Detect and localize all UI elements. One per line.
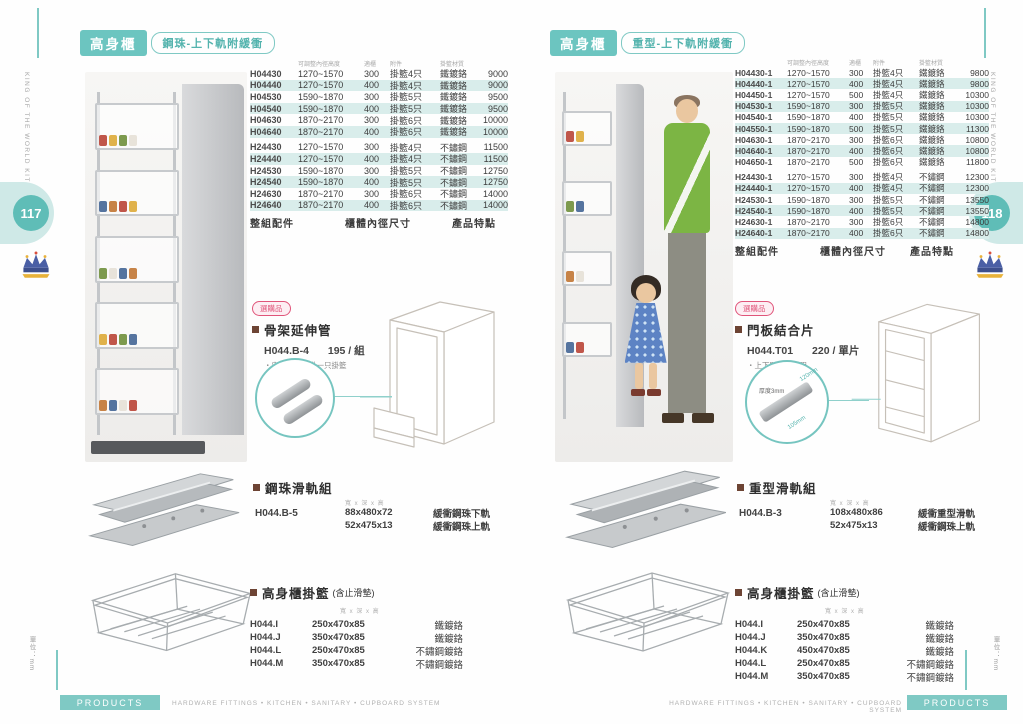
section-bullet bbox=[253, 484, 260, 491]
table-row: H04540 1590~1870 400 掛籃5只 鐵鍍鉻 9500 bbox=[250, 103, 508, 115]
rail-model: H044.B-5 bbox=[255, 508, 298, 519]
basket-dimensions: 350x470x85 bbox=[312, 632, 407, 643]
price: 12750 bbox=[474, 177, 508, 187]
spec-list bbox=[250, 233, 346, 275]
price: 9500 bbox=[474, 104, 508, 114]
basket-title-note: (含止滑墊) bbox=[818, 586, 860, 599]
model-number: H04650-1 bbox=[735, 157, 787, 167]
price: 10300 bbox=[953, 112, 989, 122]
height-range: 1870~2170 bbox=[787, 135, 849, 145]
rail-description: 緩衝鋼珠下軌 bbox=[433, 506, 490, 520]
height-range: 1870~2170 bbox=[298, 115, 364, 125]
price: 10000 bbox=[474, 115, 508, 125]
lifestyle-photo bbox=[555, 72, 733, 462]
rail-title: 重型滑軌組 bbox=[749, 478, 817, 497]
accessory: 掛籃4只 bbox=[873, 67, 919, 79]
price: 13550 bbox=[953, 206, 989, 216]
basket-model: H044.M bbox=[250, 658, 312, 669]
material: 不鏽鋼 bbox=[919, 205, 953, 217]
basket-material: 鐵鍍鉻 bbox=[407, 618, 508, 632]
wire-basket-photo bbox=[85, 565, 257, 675]
height-range: 1270~1570 bbox=[298, 80, 364, 90]
basket-model: H044.I bbox=[250, 619, 312, 630]
height-range: 1270~1570 bbox=[787, 172, 849, 182]
section-bullet bbox=[735, 326, 742, 333]
height-range: 1590~1870 bbox=[298, 92, 364, 102]
table-row: H04430 1270~1570 300 掛籃4只 鐵鍍鉻 9000 bbox=[250, 68, 508, 80]
basket-row: H044.K 450x470x85 鐵鍍鉻 bbox=[735, 644, 989, 657]
model-number: H04630 bbox=[250, 115, 298, 125]
model-number: H04430 bbox=[250, 69, 298, 79]
rail-dimensions: 52x475x13 bbox=[345, 520, 433, 531]
page-title: 高身櫃 bbox=[550, 30, 617, 56]
price: 10800 bbox=[953, 146, 989, 156]
set-accessories-spec: 整組配件 bbox=[250, 215, 346, 275]
accessory: 掛籃6只 bbox=[873, 227, 919, 239]
pullout-basket bbox=[95, 368, 179, 415]
model-number: H04440-1 bbox=[735, 79, 787, 89]
table-row: H24440 1270~1570 400 掛籃4只 不鏽鋼 11500 bbox=[250, 153, 508, 165]
spec-list bbox=[345, 233, 453, 275]
cabinet-width: 300 bbox=[364, 69, 390, 79]
price: 12300 bbox=[953, 183, 989, 193]
cabinet-width: 300 bbox=[364, 166, 390, 176]
section-bullet bbox=[735, 589, 742, 596]
plate-thickness-label: 厚度3mm bbox=[759, 386, 784, 395]
table-row: H04440 1270~1570 400 掛籃4只 鐵鍍鉻 9000 bbox=[250, 80, 508, 92]
model-number: H24430-1 bbox=[735, 172, 787, 182]
basket-dimensions: 450x470x85 bbox=[797, 645, 892, 656]
basket-title: 高身櫃掛籃 bbox=[747, 583, 815, 602]
model-number: H24540-1 bbox=[735, 206, 787, 216]
basket-rows: H044.I 250x470x85 鐵鍍鉻 H044.J 350x470x85 … bbox=[250, 618, 508, 670]
table-row: H24530-1 1590~1870 300 掛籃5只 不鏽鋼 13550 bbox=[735, 194, 989, 205]
model-number: H04640 bbox=[250, 127, 298, 137]
col-header-height-range: 可調整內徑高度 bbox=[298, 59, 364, 68]
table-header-row: 可調整內徑高度 適櫃 附件 掛籃材質 bbox=[735, 57, 989, 67]
table-row: H04450-1 1270~1570 500 掛籃4只 鐵鍍鉻 10300 bbox=[735, 89, 989, 100]
material: 不鏽鋼 bbox=[919, 182, 953, 194]
accessory: 掛籃5只 bbox=[873, 111, 919, 123]
basket-row: H044.M 350x470x85 不鏽鋼鍍鉻 bbox=[250, 657, 508, 670]
cabinet-width: 400 bbox=[364, 200, 390, 210]
pullout-basket bbox=[95, 170, 179, 217]
basket-row: H044.L 250x470x85 不鏽鋼鍍鉻 bbox=[250, 644, 508, 657]
page-subtitle: 重型-上下軌附緩衝 bbox=[621, 32, 746, 54]
model-number: H04550-1 bbox=[735, 124, 787, 134]
basket-material: 不鏽鋼鍍鉻 bbox=[892, 670, 989, 684]
material: 鐵鍍鉻 bbox=[440, 125, 474, 138]
col-header-height-range: 可調整內徑高度 bbox=[787, 58, 849, 67]
price: 13550 bbox=[953, 195, 989, 205]
slide-rail-photo bbox=[85, 468, 247, 560]
table-group-chrome: H04430 1270~1570 300 掛籃4只 鐵鍍鉻 9000 H0444… bbox=[250, 68, 508, 138]
height-range: 1590~1870 bbox=[787, 206, 849, 216]
catalog-page-117: 高身櫃 鋼珠-上下軌附緩衝 可調整內徑高度 適櫃 附件 掛籃材質 bbox=[0, 0, 511, 724]
basket-table-section: 高身櫃掛籃 (含止滑墊) 寬 x 深 x 高 H044.I 250x470x85… bbox=[735, 583, 989, 683]
basket-dimensions: 350x470x85 bbox=[797, 671, 892, 682]
height-range: 1590~1870 bbox=[298, 104, 364, 114]
dims-header: 寬 x 深 x 高 bbox=[825, 606, 989, 615]
rail-title: 鋼珠滑軌組 bbox=[265, 478, 333, 497]
cabinet-width: 400 bbox=[849, 79, 873, 89]
table-row: H04630 1870~2170 300 掛籃6只 鐵鍍鉻 10000 bbox=[250, 114, 508, 126]
table-row: H24630-1 1870~2170 300 掛籃6只 不鏽鋼 14800 bbox=[735, 216, 989, 227]
optional-title: 門板結合片 bbox=[747, 320, 815, 339]
table-group-stainless: H24430-1 1270~1570 300 掛籃4只 不鏽鋼 12300 H2… bbox=[735, 172, 989, 239]
cabinet-width: 400 bbox=[364, 80, 390, 90]
material: 鐵鍍鉻 bbox=[919, 100, 953, 112]
col-header-cabinet-width: 適櫃 bbox=[849, 58, 873, 67]
table-row: H24430-1 1270~1570 300 掛籃4只 不鏽鋼 12300 bbox=[735, 172, 989, 183]
basket-dimensions: 350x470x85 bbox=[312, 658, 407, 669]
optional-badge: 選購品 bbox=[735, 301, 774, 316]
height-range: 1270~1570 bbox=[298, 69, 364, 79]
section-bullet bbox=[252, 326, 259, 333]
cabinet-width: 400 bbox=[364, 127, 390, 137]
material: 鐵鍍鉻 bbox=[919, 156, 953, 168]
catalog-spread: KING OF THE WORLD KITCHEN WARES 117 單位：m… bbox=[0, 0, 1023, 724]
table-row: H04530 1590~1870 300 掛籃5只 鐵鍍鉻 9500 bbox=[250, 91, 508, 103]
height-range: 1270~1570 bbox=[298, 154, 364, 164]
cabinet-width: 300 bbox=[849, 217, 873, 227]
price: 11500 bbox=[474, 154, 508, 164]
cabinet-width: 300 bbox=[364, 115, 390, 125]
price: 14000 bbox=[474, 200, 508, 210]
page-header: 高身櫃 重型-上下軌附緩衝 bbox=[550, 30, 745, 56]
cabinet-width: 300 bbox=[849, 135, 873, 145]
pullout-basket bbox=[95, 103, 179, 150]
height-range: 1590~1870 bbox=[787, 124, 849, 134]
material: 鐵鍍鉻 bbox=[919, 123, 953, 135]
basket-model: H044.L bbox=[735, 658, 797, 669]
table-row: H04440-1 1270~1570 400 掛籃4只 鐵鍍鉻 9800 bbox=[735, 78, 989, 89]
basket-model: H044.K bbox=[735, 645, 797, 656]
height-range: 1870~2170 bbox=[298, 200, 364, 210]
inner-size-spec: 櫃體內徑尺寸 bbox=[345, 215, 453, 275]
cabinet-width: 400 bbox=[364, 154, 390, 164]
height-range: 1870~2170 bbox=[298, 127, 364, 137]
pullout-basket bbox=[562, 111, 612, 146]
basket-table-section: 高身櫃掛籃 (含止滑墊) 寬 x 深 x 高 H044.I 250x470x85… bbox=[250, 583, 508, 670]
price: 9800 bbox=[953, 68, 989, 78]
features-spec: 產品特點 bbox=[452, 215, 510, 275]
cabinet-width: 400 bbox=[364, 177, 390, 187]
cabinet-width: 400 bbox=[364, 104, 390, 114]
optional-product-section: 選購品 門板結合片 H044.T01 220 / 單片 ・上下門板連結用 bbox=[735, 298, 859, 371]
model-number: H24440 bbox=[250, 154, 298, 164]
price: 10300 bbox=[953, 101, 989, 111]
model-number: H24540 bbox=[250, 177, 298, 187]
accessory: 掛籃4只 bbox=[873, 171, 919, 183]
price: 11800 bbox=[953, 157, 989, 167]
height-range: 1270~1570 bbox=[298, 142, 364, 152]
cabinet-width: 500 bbox=[849, 90, 873, 100]
catalog-page-118: 高身櫃 重型-上下軌附緩衝 bbox=[512, 0, 1023, 724]
model-number: H24630 bbox=[250, 189, 298, 199]
door-plate-inset: 厚度3mm 120mm 105mm bbox=[745, 360, 829, 444]
accessory: 掛籃6只 bbox=[873, 216, 919, 228]
accessory: 掛籃6只 bbox=[873, 134, 919, 146]
cabinet-width: 300 bbox=[849, 101, 873, 111]
model-number: H04530-1 bbox=[735, 101, 787, 111]
basket-row: H044.L 250x470x85 不鏽鋼鍍鉻 bbox=[735, 657, 989, 670]
price: 9500 bbox=[474, 92, 508, 102]
material: 鐵鍍鉻 bbox=[919, 89, 953, 101]
rail-description: 緩衝鋼珠上軌 bbox=[918, 519, 975, 533]
accessory: 掛籃6只 bbox=[873, 145, 919, 157]
height-range: 1870~2170 bbox=[787, 146, 849, 156]
accessory: 掛籃4只 bbox=[873, 182, 919, 194]
optional-badge: 選購品 bbox=[252, 301, 291, 316]
material: 不鏽鋼 bbox=[919, 194, 953, 206]
cabinet-width: 500 bbox=[849, 124, 873, 134]
rail-description: 緩衝鋼珠上軌 bbox=[433, 519, 490, 533]
spec-title: 整組配件 bbox=[735, 243, 831, 258]
price: 9000 bbox=[474, 80, 508, 90]
height-range: 1870~2170 bbox=[787, 228, 849, 238]
height-range: 1870~2170 bbox=[787, 217, 849, 227]
table-row: H04650-1 1870~2170 500 掛籃6只 鐵鍍鉻 11800 bbox=[735, 157, 989, 168]
accessory: 掛籃5只 bbox=[873, 205, 919, 217]
model-number: H04430-1 bbox=[735, 68, 787, 78]
cabinet-side-panel bbox=[182, 84, 244, 435]
height-range: 1270~1570 bbox=[787, 183, 849, 193]
basket-dimensions: 350x470x85 bbox=[797, 632, 892, 643]
basket-model: H044.L bbox=[250, 645, 312, 656]
pullout-basket bbox=[95, 302, 179, 349]
basket-material: 不鏽鋼鍍鉻 bbox=[407, 657, 508, 671]
basket-material: 鐵鍍鉻 bbox=[892, 644, 989, 658]
rail-row: 52x475x13 緩衝鋼珠上軌 bbox=[345, 519, 490, 532]
page-subtitle: 鋼珠-上下軌附緩衝 bbox=[151, 32, 276, 54]
cabinet-width: 400 bbox=[849, 206, 873, 216]
basket-dimensions: 250x470x85 bbox=[797, 658, 892, 669]
spec-list bbox=[735, 261, 831, 303]
material: 鐵鍍鉻 bbox=[919, 67, 953, 79]
pullout-basket bbox=[95, 236, 179, 283]
material: 鐵鍍鉻 bbox=[919, 111, 953, 123]
table-row: H24540-1 1590~1870 400 掛籃5只 不鏽鋼 13550 bbox=[735, 205, 989, 216]
cabinet-width: 300 bbox=[364, 142, 390, 152]
accessory: 掛籃6只 bbox=[390, 125, 440, 138]
table-row: H04630-1 1870~2170 300 掛籃6只 鐵鍍鉻 10800 bbox=[735, 134, 989, 145]
optional-model: H044.B-4 bbox=[264, 345, 309, 357]
model-spec-table: 可調整內徑高度 適櫃 附件 掛籃材質 H04430 1270~1570 300 … bbox=[250, 58, 508, 211]
rail-dimensions: 52x475x13 bbox=[830, 520, 918, 531]
basket-rows: H044.I 250x470x85 鐵鍍鉻 H044.J 350x470x85 … bbox=[735, 618, 989, 683]
cabinet-width: 500 bbox=[849, 157, 873, 167]
price: 14000 bbox=[474, 189, 508, 199]
basket-model: H044.J bbox=[250, 632, 312, 643]
table-row: H24530 1590~1870 300 掛籃5只 不鏽鋼 12750 bbox=[250, 165, 508, 177]
basket-model: H044.J bbox=[735, 632, 797, 643]
rail-rows: 88x480x72 緩衝鋼珠下軌 52x475x13 緩衝鋼珠上軌 bbox=[345, 506, 490, 532]
basket-material: 不鏽鋼鍍鉻 bbox=[892, 657, 989, 671]
model-number: H04450-1 bbox=[735, 90, 787, 100]
model-number: H04630-1 bbox=[735, 135, 787, 145]
spec-title: 產品特點 bbox=[452, 215, 510, 230]
table-group-stainless: H24430 1270~1570 300 掛籃4只 不鏽鋼 11500 H244… bbox=[250, 142, 508, 212]
basket-row: H044.M 350x470x85 不鏽鋼鍍鉻 bbox=[735, 670, 989, 683]
height-range: 1590~1870 bbox=[298, 166, 364, 176]
page-header: 高身櫃 鋼珠-上下軌附緩衝 bbox=[80, 30, 275, 56]
basket-title: 高身櫃掛籃 bbox=[262, 583, 330, 602]
height-range: 1590~1870 bbox=[298, 177, 364, 187]
cabinet-width: 400 bbox=[849, 183, 873, 193]
table-row: H04540-1 1590~1870 400 掛籃5只 鐵鍍鉻 10300 bbox=[735, 112, 989, 123]
section-bullet bbox=[250, 589, 257, 596]
inset-connector-line bbox=[827, 400, 869, 401]
height-range: 1590~1870 bbox=[787, 195, 849, 205]
tall-cabinet-product-photo bbox=[85, 72, 247, 462]
spec-title: 櫃體內徑尺寸 bbox=[345, 215, 453, 230]
basket-model: H044.I bbox=[735, 619, 797, 630]
rail-row: 108x480x86 緩衝重型滑軌 bbox=[830, 506, 975, 519]
price: 11500 bbox=[474, 142, 508, 152]
plate-dim-label: 120mm bbox=[799, 367, 819, 383]
basket-material: 鐵鍍鉻 bbox=[892, 618, 989, 632]
table-row: H24630 1870~2170 300 掛籃6只 不鏽鋼 14000 bbox=[250, 188, 508, 200]
table-group-chrome: H04430-1 1270~1570 300 掛籃4只 鐵鍍鉻 9800 H04… bbox=[735, 67, 989, 168]
cabinet-width: 300 bbox=[364, 92, 390, 102]
cabinet-width: 400 bbox=[849, 228, 873, 238]
table-row: H04530-1 1590~1870 300 掛籃5只 鐵鍍鉻 10300 bbox=[735, 101, 989, 112]
material: 不鏽鋼 bbox=[919, 216, 953, 228]
price: 10300 bbox=[953, 90, 989, 100]
cabinet-technical-drawing bbox=[842, 290, 992, 462]
basket-dimensions: 250x470x85 bbox=[312, 645, 407, 656]
table-row: H04550-1 1590~1870 500 掛籃5只 鐵鍍鉻 11300 bbox=[735, 123, 989, 134]
col-header-cabinet-width: 適櫃 bbox=[364, 59, 390, 68]
height-range: 1270~1570 bbox=[787, 90, 849, 100]
rail-rows: 108x480x86 緩衝重型滑軌 52x475x13 緩衝鋼珠上軌 bbox=[830, 506, 975, 532]
cabinet-width: 400 bbox=[849, 146, 873, 156]
price: 9800 bbox=[953, 79, 989, 89]
material: 鐵鍍鉻 bbox=[919, 78, 953, 90]
extension-tube-inset bbox=[255, 358, 335, 438]
page-title: 高身櫃 bbox=[80, 30, 147, 56]
basket-model: H044.M bbox=[735, 671, 797, 682]
table-row: H04430-1 1270~1570 300 掛籃4只 鐵鍍鉻 9800 bbox=[735, 67, 989, 78]
cabinet-technical-drawing bbox=[352, 290, 507, 462]
height-range: 1270~1570 bbox=[787, 79, 849, 89]
cabinet-width: 300 bbox=[849, 68, 873, 78]
model-number: H04530 bbox=[250, 92, 298, 102]
accessory: 掛籃5只 bbox=[873, 123, 919, 135]
rail-row: 52x475x13 緩衝鋼珠上軌 bbox=[830, 519, 975, 532]
model-number: H24530-1 bbox=[735, 195, 787, 205]
rail-dimensions: 108x480x86 bbox=[830, 507, 918, 518]
section-bullet bbox=[737, 484, 744, 491]
model-number: H24440-1 bbox=[735, 183, 787, 193]
spec-title: 整組配件 bbox=[250, 215, 346, 230]
table-row: H24430 1270~1570 300 掛籃4只 不鏽鋼 11500 bbox=[250, 142, 508, 154]
pullout-basket bbox=[562, 251, 612, 286]
model-spec-table: 可調整內徑高度 適櫃 附件 掛籃材質 H04430-1 1270~1570 30… bbox=[735, 57, 989, 239]
model-number: H24530 bbox=[250, 166, 298, 176]
table-row: H24540 1590~1870 400 掛籃5只 不鏽鋼 12750 bbox=[250, 176, 508, 188]
pullout-basket bbox=[562, 322, 612, 357]
accessory: 掛籃4只 bbox=[873, 89, 919, 101]
price: 10800 bbox=[953, 135, 989, 145]
basket-row: H044.J 350x470x85 鐵鍍鉻 bbox=[735, 631, 989, 644]
table-row: H24440-1 1270~1570 400 掛籃4只 不鏽鋼 12300 bbox=[735, 183, 989, 194]
material: 不鏽鋼 bbox=[440, 199, 474, 212]
price: 9000 bbox=[474, 69, 508, 79]
model-number: H04640-1 bbox=[735, 146, 787, 156]
spec-list bbox=[452, 233, 510, 275]
accessory: 掛籃5只 bbox=[873, 100, 919, 112]
table-row: H04640-1 1870~2170 400 掛籃6只 鐵鍍鉻 10800 bbox=[735, 145, 989, 156]
material: 不鏽鋼 bbox=[919, 171, 953, 183]
height-range: 1870~2170 bbox=[787, 157, 849, 167]
price: 12750 bbox=[474, 166, 508, 176]
accessory: 掛籃4只 bbox=[873, 78, 919, 90]
spec-title: 產品特點 bbox=[910, 243, 970, 258]
rail-dimensions: 88x480x72 bbox=[345, 507, 433, 518]
height-range: 1590~1870 bbox=[787, 101, 849, 111]
rail-description: 緩衝重型滑軌 bbox=[918, 506, 975, 520]
table-row: H04640 1870~2170 400 掛籃6只 鐵鍍鉻 10000 bbox=[250, 126, 508, 138]
dims-header: 寬 x 深 x 高 bbox=[340, 606, 508, 615]
height-range: 1270~1570 bbox=[787, 68, 849, 78]
basket-material: 鐵鍍鉻 bbox=[407, 631, 508, 645]
height-range: 1870~2170 bbox=[298, 189, 364, 199]
basket-row: H044.J 350x470x85 鐵鍍鉻 bbox=[250, 631, 508, 644]
optional-title: 骨架延伸管 bbox=[264, 320, 332, 339]
model-number: H04540-1 bbox=[735, 112, 787, 122]
model-number: H04540 bbox=[250, 104, 298, 114]
cabinet-width: 300 bbox=[849, 195, 873, 205]
height-range: 1590~1870 bbox=[787, 112, 849, 122]
model-number: H24640 bbox=[250, 200, 298, 210]
model-number: H24640-1 bbox=[735, 228, 787, 238]
basket-row: H044.I 250x470x85 鐵鍍鉻 bbox=[735, 618, 989, 631]
accessory: 掛籃5只 bbox=[873, 194, 919, 206]
accessory: 掛籃6只 bbox=[873, 156, 919, 168]
slide-rail-photo bbox=[562, 465, 734, 563]
plate-dim-label: 105mm bbox=[787, 415, 807, 431]
price: 12300 bbox=[953, 172, 989, 182]
material: 不鏽鋼 bbox=[919, 227, 953, 239]
model-number: H24430 bbox=[250, 142, 298, 152]
optional-model: H044.T01 bbox=[747, 345, 793, 357]
basket-material: 鐵鍍鉻 bbox=[892, 631, 989, 645]
accessory: 掛籃6只 bbox=[390, 199, 440, 212]
inset-connector-line bbox=[330, 396, 392, 397]
wire-basket-photo bbox=[560, 565, 735, 675]
price: 14800 bbox=[953, 217, 989, 227]
rail-row: 88x480x72 緩衝鋼珠下軌 bbox=[345, 506, 490, 519]
basket-dimensions: 250x470x85 bbox=[312, 619, 407, 630]
rail-model: H044.B-3 bbox=[739, 508, 782, 519]
cabinet-base bbox=[91, 441, 204, 455]
cabinet-width: 300 bbox=[849, 172, 873, 182]
table-row: H24640-1 1870~2170 400 掛籃6只 不鏽鋼 14800 bbox=[735, 228, 989, 239]
basket-title-note: (含止滑墊) bbox=[333, 586, 375, 599]
pullout-basket bbox=[562, 181, 612, 216]
set-accessories-spec: 整組配件 bbox=[735, 243, 831, 303]
table-row: H24640 1870~2170 400 掛籃6只 不鏽鋼 14000 bbox=[250, 200, 508, 212]
price: 14800 bbox=[953, 228, 989, 238]
model-number: H04440 bbox=[250, 80, 298, 90]
material: 鐵鍍鉻 bbox=[919, 134, 953, 146]
cabinet-width: 300 bbox=[364, 189, 390, 199]
basket-dimensions: 250x470x85 bbox=[797, 619, 892, 630]
girl-figure bbox=[623, 275, 676, 462]
material: 鐵鍍鉻 bbox=[919, 145, 953, 157]
